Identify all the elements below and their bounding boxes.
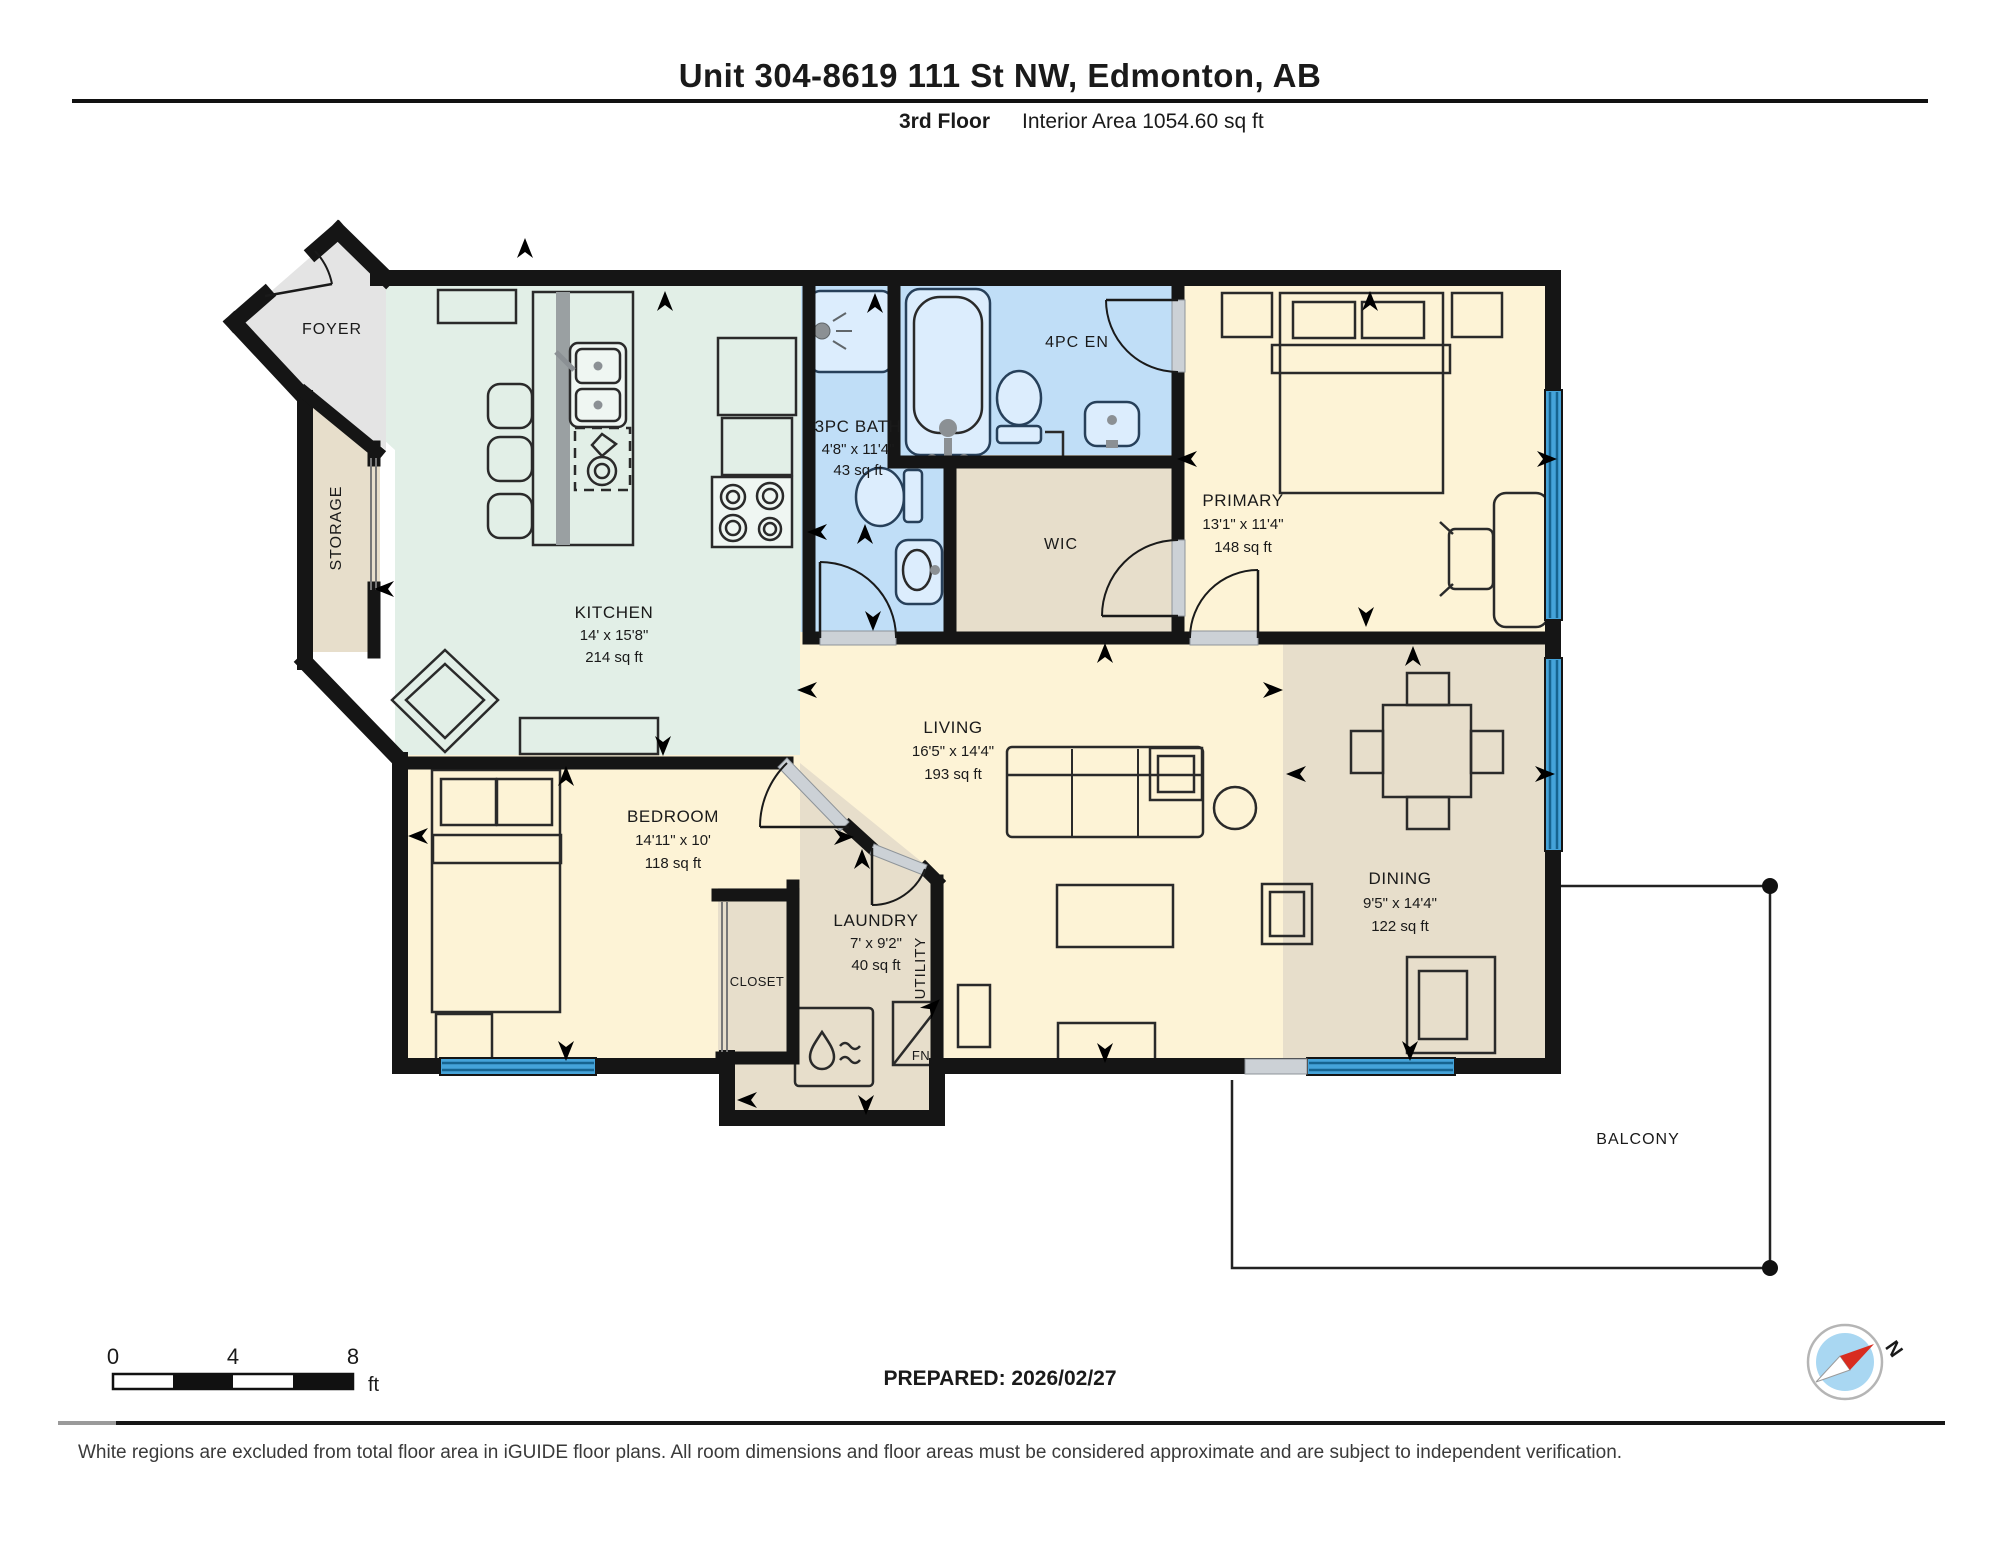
- label-primary-dim: 13'1" x 11'4": [1202, 516, 1283, 533]
- balcony-post-icon: [1762, 878, 1778, 894]
- label-bath-area: 43 sq ft: [833, 462, 883, 479]
- label-laundry-area: 40 sq ft: [851, 957, 901, 974]
- tub-drain-icon: [939, 419, 957, 437]
- label-balcony: BALCONY: [1596, 1131, 1679, 1148]
- label-foyer: FOYER: [302, 321, 362, 338]
- label-laundry: LAUNDRY: [833, 911, 918, 930]
- scale-bar-segment: [293, 1374, 353, 1389]
- drain-icon: [594, 401, 603, 410]
- scale-tick-8: 8: [347, 1344, 359, 1369]
- label-bath: 3PC BATH: [815, 417, 902, 436]
- toilet-tank-icon: [904, 470, 922, 522]
- label-dining-dim: 9'5" x 14'4": [1363, 895, 1437, 912]
- window: [1545, 390, 1562, 620]
- floor-label: 3rd Floor: [899, 110, 990, 133]
- footer-divider: [58, 1421, 1945, 1425]
- kitchen-sink-icon: [570, 343, 626, 427]
- label-laundry-dim: 7' x 9'2": [850, 935, 902, 952]
- interior-area-label: Interior Area 1054.60 sq ft: [1022, 110, 1264, 133]
- disclaimer-text: White regions are excluded from total fl…: [78, 1442, 1622, 1463]
- scale-tick-0: 0: [107, 1344, 119, 1369]
- label-dining-area: 122 sq ft: [1371, 918, 1429, 935]
- window: [440, 1058, 596, 1075]
- toilet-icon: [997, 371, 1041, 425]
- label-living-area: 193 sq ft: [924, 766, 982, 783]
- compass-north-label: N: [1880, 1337, 1906, 1361]
- label-kitchen-dim: 14' x 15'8": [580, 627, 649, 644]
- compass: N: [1808, 1325, 1907, 1399]
- label-ensuite: 4PC EN: [1045, 334, 1109, 351]
- window: [1545, 658, 1562, 851]
- floor-plan-canvas: Unit 304-8619 111 St NW, Edmonton, AB 3r…: [0, 0, 2000, 1545]
- label-kitchen-area: 214 sq ft: [585, 649, 643, 666]
- footer-divider-end: [58, 1421, 116, 1425]
- faucet-icon: [1106, 440, 1118, 448]
- camera-arrow: [517, 238, 533, 258]
- sliding-patio-door: [1245, 1059, 1307, 1074]
- room-dining-area: [1283, 632, 1561, 1074]
- faucet-icon: [1107, 415, 1117, 425]
- door-threshold: [820, 631, 896, 645]
- balcony-post-icon: [1762, 1260, 1778, 1276]
- label-furnace: FN: [912, 1048, 930, 1063]
- door-threshold: [1172, 540, 1185, 616]
- label-bedroom-area: 118 sq ft: [645, 855, 702, 872]
- label-kitchen: KITCHEN: [575, 603, 654, 622]
- label-storage: STORAGE: [328, 486, 345, 571]
- label-bedroom: BEDROOM: [627, 807, 719, 826]
- page-title: Unit 304-8619 111 St NW, Edmonton, AB: [679, 57, 1322, 94]
- door-threshold: [1172, 300, 1185, 372]
- door-threshold: [1190, 631, 1258, 645]
- label-dining: DINING: [1368, 869, 1431, 888]
- scale-tick-4: 4: [227, 1344, 239, 1369]
- label-primary: PRIMARY: [1202, 491, 1283, 510]
- scale-bar: 0 4 8 ft: [107, 1344, 380, 1396]
- title-divider: [72, 99, 1928, 103]
- floor-plan-page: Unit 304-8619 111 St NW, Edmonton, AB 3r…: [0, 0, 2000, 1545]
- kitchen-island-ledge: [556, 292, 570, 545]
- label-wic: WIC: [1044, 536, 1078, 553]
- toilet-tank-icon: [997, 426, 1041, 443]
- window: [1307, 1058, 1455, 1075]
- label-primary-area: 148 sq ft: [1214, 539, 1272, 556]
- label-living-dim: 16'5" x 14'4": [912, 743, 994, 760]
- label-living: LIVING: [923, 718, 982, 737]
- prepared-date: PREPARED: 2026/02/27: [883, 1367, 1116, 1390]
- drain-icon: [594, 362, 603, 371]
- label-bedroom-dim: 14'11" x 10': [635, 832, 711, 849]
- faucet-icon: [930, 565, 940, 575]
- label-bath-dim: 4'8" x 11'4": [822, 441, 895, 458]
- scale-unit: ft: [368, 1374, 380, 1396]
- shower-head-icon: [814, 323, 830, 339]
- label-utility: UTILITY: [912, 937, 929, 1000]
- label-closet: CLOSET: [730, 974, 784, 989]
- scale-bar-segment: [173, 1374, 233, 1389]
